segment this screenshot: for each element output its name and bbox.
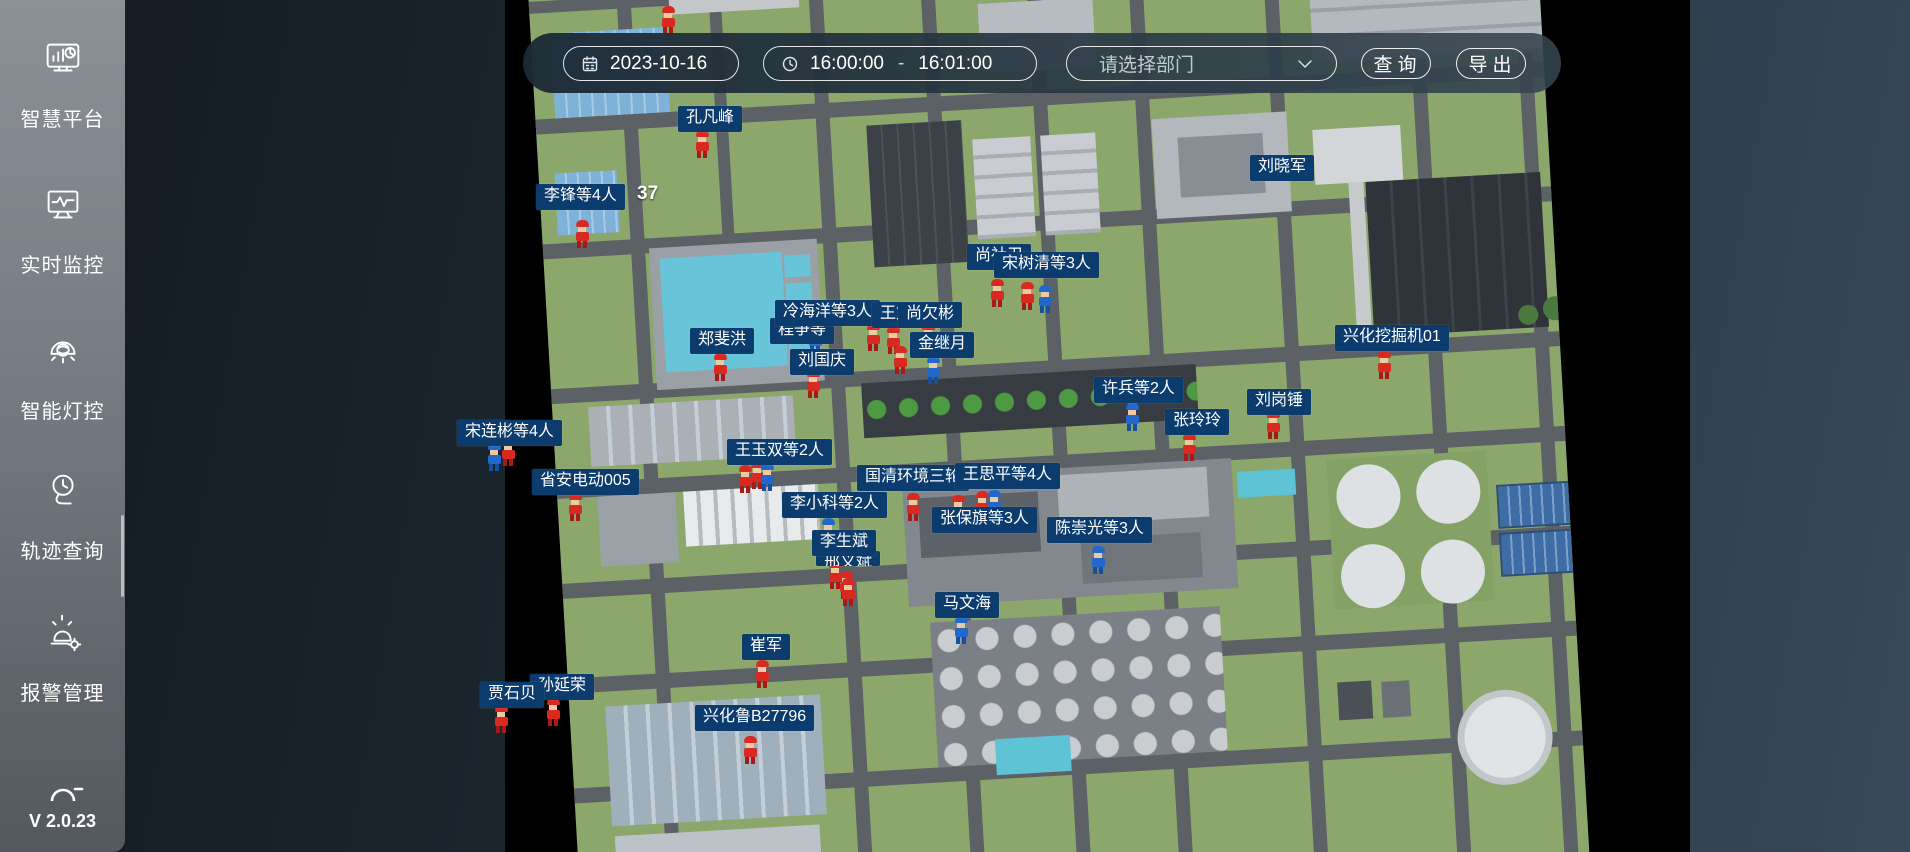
person-label[interactable]: 宋连彬等4人: [457, 420, 562, 446]
person-marker-blue[interactable]: [953, 616, 969, 644]
map-feature: [972, 136, 1036, 239]
person-label[interactable]: 刘国庆: [790, 349, 854, 375]
person-marker-red[interactable]: [1376, 351, 1392, 379]
map-feature: [995, 735, 1072, 775]
map-feature: [1237, 469, 1296, 498]
person-marker-red[interactable]: [1181, 433, 1197, 461]
person-label[interactable]: 郑斐洪: [690, 328, 754, 354]
person-label[interactable]: 马文海: [935, 592, 999, 618]
map-feature: [1040, 132, 1101, 235]
sidebar-scrollbar-thumb[interactable]: [121, 515, 124, 597]
monitor-pulse-icon: [40, 182, 86, 233]
sidebar: 智慧平台 实时监控 智能灯控 轨迹查询 报警管理 V 2.0.23: [0, 0, 125, 852]
map-feature: [930, 606, 1228, 767]
person-marker-red[interactable]: [989, 279, 1005, 307]
map-text: 37: [637, 183, 658, 205]
person-marker-red[interactable]: [694, 130, 710, 158]
person-marker-red[interactable]: [574, 220, 590, 248]
person-marker-red[interactable]: [840, 578, 856, 606]
siren-icon: [40, 610, 86, 661]
person-marker-red[interactable]: [545, 698, 561, 726]
sidebar-item-smart-platform[interactable]: 智慧平台: [0, 36, 125, 132]
department-select[interactable]: 请选择部门: [1066, 46, 1337, 81]
person-label[interactable]: 尚欠彬: [898, 302, 962, 328]
person-label[interactable]: 李锋等4人: [536, 184, 625, 210]
person-marker-blue[interactable]: [925, 356, 941, 384]
sidebar-item-alarm-management[interactable]: 报警管理: [0, 610, 125, 706]
sidebar-item-trajectory-query[interactable]: 轨迹查询: [0, 468, 125, 564]
person-label[interactable]: 刘晓军: [1250, 155, 1314, 181]
person-marker-red[interactable]: [660, 6, 676, 34]
map-feature: [1381, 680, 1411, 718]
map-feature: [1542, 296, 1567, 321]
person-marker-red[interactable]: [892, 346, 908, 374]
person-marker-red[interactable]: [712, 353, 728, 381]
person-marker-red[interactable]: [493, 705, 509, 733]
sidebar-item-smart-light[interactable]: 智能灯控: [0, 328, 125, 424]
person-label[interactable]: 王玉双等2人: [727, 439, 832, 465]
map-feature: [1455, 687, 1555, 787]
map-feature: [666, 0, 799, 15]
time-range-field[interactable]: 16:00:00 - 16:01:00: [763, 46, 1037, 81]
time-separator: -: [898, 53, 904, 75]
person-label[interactable]: 陈崇光等3人: [1047, 517, 1152, 543]
sidebar-item-label: 实时监控: [21, 249, 105, 278]
person-label[interactable]: 崔军: [742, 634, 790, 660]
chevron-down-icon: [1298, 60, 1312, 68]
time-end-value: 16:01:00: [918, 53, 992, 75]
person-marker-blue[interactable]: [759, 463, 775, 491]
person-label[interactable]: 国清环境三轮: [857, 465, 969, 491]
person-label[interactable]: 张玲玲: [1165, 409, 1229, 435]
person-label[interactable]: 王思平等4人: [955, 463, 1060, 489]
map-feature: [615, 824, 826, 852]
calendar-icon: [582, 56, 598, 72]
person-marker-red[interactable]: [905, 493, 921, 521]
person-marker-red[interactable]: [1019, 282, 1035, 310]
clock-icon: [782, 56, 798, 72]
version-text: V 2.0.23: [29, 811, 96, 832]
person-label[interactable]: 孔凡峰: [678, 106, 742, 132]
map-feature: [597, 492, 679, 566]
person-label[interactable]: 许兵等2人: [1094, 377, 1183, 403]
export-button[interactable]: 导出: [1456, 48, 1526, 79]
person-marker-red[interactable]: [754, 660, 770, 688]
sidebar-item-label: 智慧平台: [21, 103, 105, 132]
department-placeholder: 请选择部门: [1099, 50, 1298, 77]
person-label[interactable]: 冷海洋等3人: [775, 300, 880, 326]
sidebar-item-label: 报警管理: [21, 677, 105, 706]
person-label[interactable]: 刘岗锤: [1247, 389, 1311, 415]
person-label[interactable]: 省安电动005: [532, 469, 639, 495]
toolbar: 2023-10-16 16:00:00 - 16:01:00 请选择部门 查询 …: [523, 33, 1561, 93]
person-label[interactable]: 李小科等2人: [782, 492, 887, 518]
person-label[interactable]: 贾石贝: [480, 682, 544, 708]
date-value: 2023-10-16: [610, 53, 707, 75]
person-marker-blue[interactable]: [1037, 285, 1053, 313]
sidebar-item-label: 智能灯控: [21, 395, 105, 424]
person-marker-red[interactable]: [742, 736, 758, 764]
map-feature: [1312, 125, 1403, 185]
dashboard-monitor-icon: [40, 36, 86, 87]
lamp-icon: [40, 328, 86, 379]
query-button[interactable]: 查询: [1361, 48, 1431, 79]
person-label[interactable]: 兴化挖掘机01: [1335, 325, 1449, 351]
person-marker-red[interactable]: [1265, 411, 1281, 439]
partial-user-icon: [42, 779, 84, 801]
person-label[interactable]: 金继月: [910, 332, 974, 358]
person-label[interactable]: 兴化鲁B27796: [695, 705, 814, 731]
person-label[interactable]: 李生斌: [812, 530, 876, 556]
map-feature: [1496, 479, 1594, 529]
date-field[interactable]: 2023-10-16: [563, 46, 739, 81]
sidebar-item-realtime-monitor[interactable]: 实时监控: [0, 182, 125, 278]
sidebar-item-label: 轨迹查询: [21, 535, 105, 564]
map-feature: [866, 120, 969, 267]
person-label[interactable]: 张保旗等3人: [932, 507, 1037, 533]
pin-clock-icon: [40, 468, 86, 519]
person-label[interactable]: 宋树清等3人: [994, 252, 1099, 278]
person-marker-blue[interactable]: [1124, 403, 1140, 431]
person-marker-blue[interactable]: [1090, 546, 1106, 574]
map-feature: [1337, 680, 1373, 720]
map-feature: [1499, 527, 1594, 577]
time-start-value: 16:00:00: [810, 53, 884, 75]
map-viewport: [125, 0, 1910, 852]
person-marker-red[interactable]: [567, 493, 583, 521]
